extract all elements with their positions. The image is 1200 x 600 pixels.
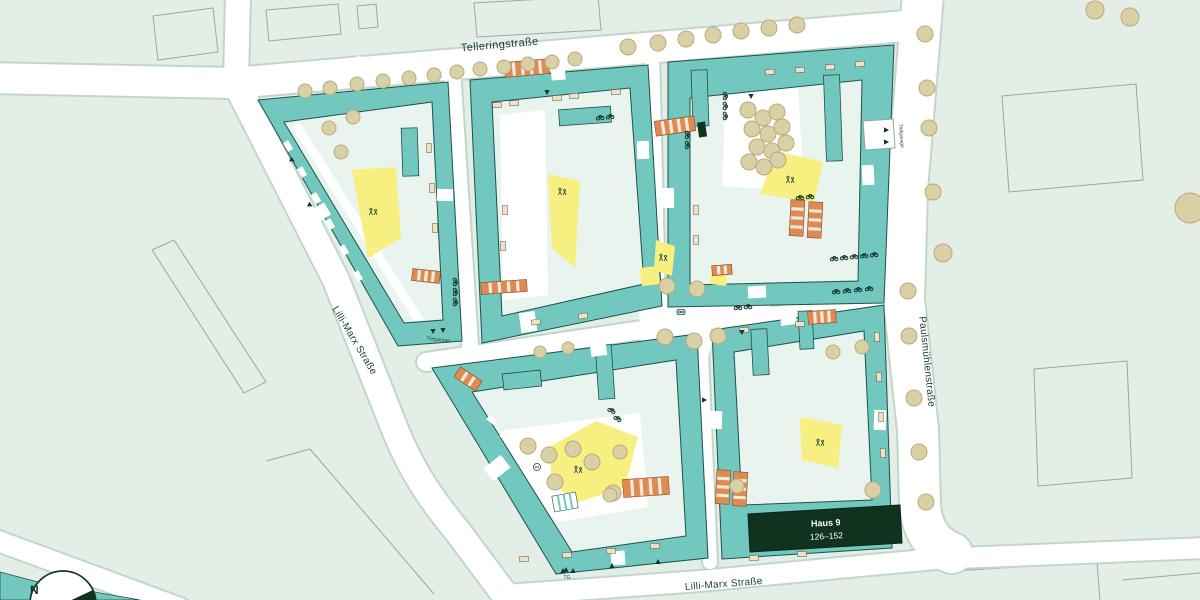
garage-building (863, 119, 895, 150)
tree-icon (686, 333, 702, 349)
canopy-structure (807, 202, 823, 239)
entrance-box (874, 332, 879, 341)
entrance-box (519, 556, 528, 562)
building-passage (748, 286, 767, 299)
entrance-box (825, 64, 834, 70)
tree-icon (770, 152, 786, 168)
tree-icon (334, 145, 348, 159)
entrance-box (693, 205, 698, 214)
tree-icon (584, 454, 600, 470)
canopy-structure (622, 476, 669, 497)
canopy-structure (808, 310, 837, 325)
tree-icon (741, 154, 757, 170)
tree-icon (450, 65, 464, 79)
tree-icon (545, 55, 559, 69)
canopy-structure (715, 470, 731, 505)
tree-icon (520, 438, 536, 454)
entrance-box (509, 100, 518, 106)
tree-icon (744, 121, 760, 137)
tree-icon (376, 74, 390, 88)
tree-icon (562, 342, 574, 354)
building-passage (861, 165, 874, 186)
tree-icon (919, 80, 935, 96)
entrance-box (693, 235, 698, 244)
building-wing (502, 370, 541, 390)
entrance-box (749, 555, 758, 560)
tree-icon (473, 62, 487, 76)
tree-icon (789, 17, 805, 33)
tree-icon (323, 81, 337, 95)
entrance-box (797, 551, 806, 556)
tree-icon (906, 390, 922, 406)
haus-9-name: Haus 9 (811, 517, 841, 529)
haus-9-numbers: 126–152 (810, 530, 844, 542)
tree-icon (541, 447, 557, 463)
tree-icon (918, 494, 934, 510)
tree-icon (565, 441, 581, 457)
tree-icon (350, 77, 364, 91)
tree-icon (620, 39, 636, 55)
building-passage (589, 335, 608, 357)
tree-icon (865, 482, 881, 498)
tree-icon (730, 479, 744, 493)
entrance-box (878, 412, 883, 421)
entrance-box (562, 552, 571, 558)
entrance-box (569, 93, 578, 99)
tree-icon (1175, 193, 1200, 223)
entrance-box (611, 89, 620, 95)
tree-icon (760, 126, 776, 142)
canopy-structure (411, 269, 440, 284)
building-passage (779, 306, 797, 326)
entrance-box (795, 321, 804, 327)
tree-icon (689, 281, 705, 297)
canopy-structure (712, 264, 733, 275)
building-wing (824, 75, 843, 162)
tree-icon (774, 119, 790, 135)
entrance-box (765, 69, 774, 75)
tree-icon (427, 68, 441, 82)
tree-icon (826, 345, 840, 359)
tree-icon (346, 110, 360, 124)
entrance-box (426, 143, 431, 152)
entrance-box (552, 95, 561, 101)
tree-icon (657, 329, 673, 345)
tree-icon (402, 71, 416, 85)
entrance-box (531, 319, 541, 325)
entrance-box (606, 548, 615, 554)
tree-icon (740, 102, 756, 118)
entrance-box (795, 67, 804, 73)
building-passage (637, 141, 650, 159)
tree-icon (900, 283, 916, 299)
building-passage (354, 56, 373, 80)
tree-icon (934, 244, 952, 262)
compass-north-letter: N (30, 583, 39, 597)
entrance-box (502, 205, 507, 214)
tree-icon (650, 35, 666, 51)
tree-icon (521, 57, 535, 71)
tree-icon (749, 139, 765, 155)
entrance-box (492, 102, 501, 108)
tree-icon (901, 328, 917, 344)
tree-icon (603, 488, 617, 502)
entrance-box (429, 183, 434, 192)
tree-icon (322, 121, 336, 135)
tree-icon (298, 84, 312, 98)
entrance-box (578, 313, 588, 319)
building-passage (710, 411, 723, 429)
tree-icon (705, 27, 721, 43)
tree-icon (911, 444, 927, 460)
tree-icon (1086, 1, 1104, 19)
entrance-box (432, 223, 437, 232)
tree-icon (659, 278, 675, 294)
tree-icon (756, 159, 772, 175)
tree-icon (917, 26, 933, 42)
tree-icon (778, 135, 794, 151)
entrance-box (500, 241, 505, 250)
tree-icon (761, 20, 777, 36)
tree-icon (678, 31, 694, 47)
tree-icon (1121, 8, 1139, 26)
site-plan-map[interactable]: Haus 9 126–152 Telleringstraße Lilli-Mar… (0, 0, 1200, 600)
entrance-box (650, 543, 659, 549)
entrance-box (876, 372, 881, 381)
tree-icon (547, 474, 563, 490)
tree-icon (534, 346, 546, 358)
tree-icon (710, 328, 726, 344)
building-passage (662, 188, 674, 208)
label-tg-entry: TG (564, 575, 571, 581)
tree-icon (613, 445, 627, 459)
tree-icon (921, 120, 937, 136)
building-wing (401, 128, 419, 177)
tree-icon (925, 184, 941, 200)
tree-icon (733, 23, 749, 39)
tree-icon (568, 52, 582, 66)
building-passage (437, 189, 453, 202)
building-wing (751, 329, 769, 376)
canopy-structure (789, 200, 805, 237)
tree-icon (855, 340, 869, 354)
entrance-box (855, 61, 864, 67)
tree-icon (497, 60, 511, 74)
site-plan-svg: Haus 9 126–152 Telleringstraße Lilli-Mar… (0, 0, 1200, 600)
entrance-box (880, 448, 885, 457)
building-wing (559, 106, 612, 126)
tree-icon (769, 104, 785, 120)
